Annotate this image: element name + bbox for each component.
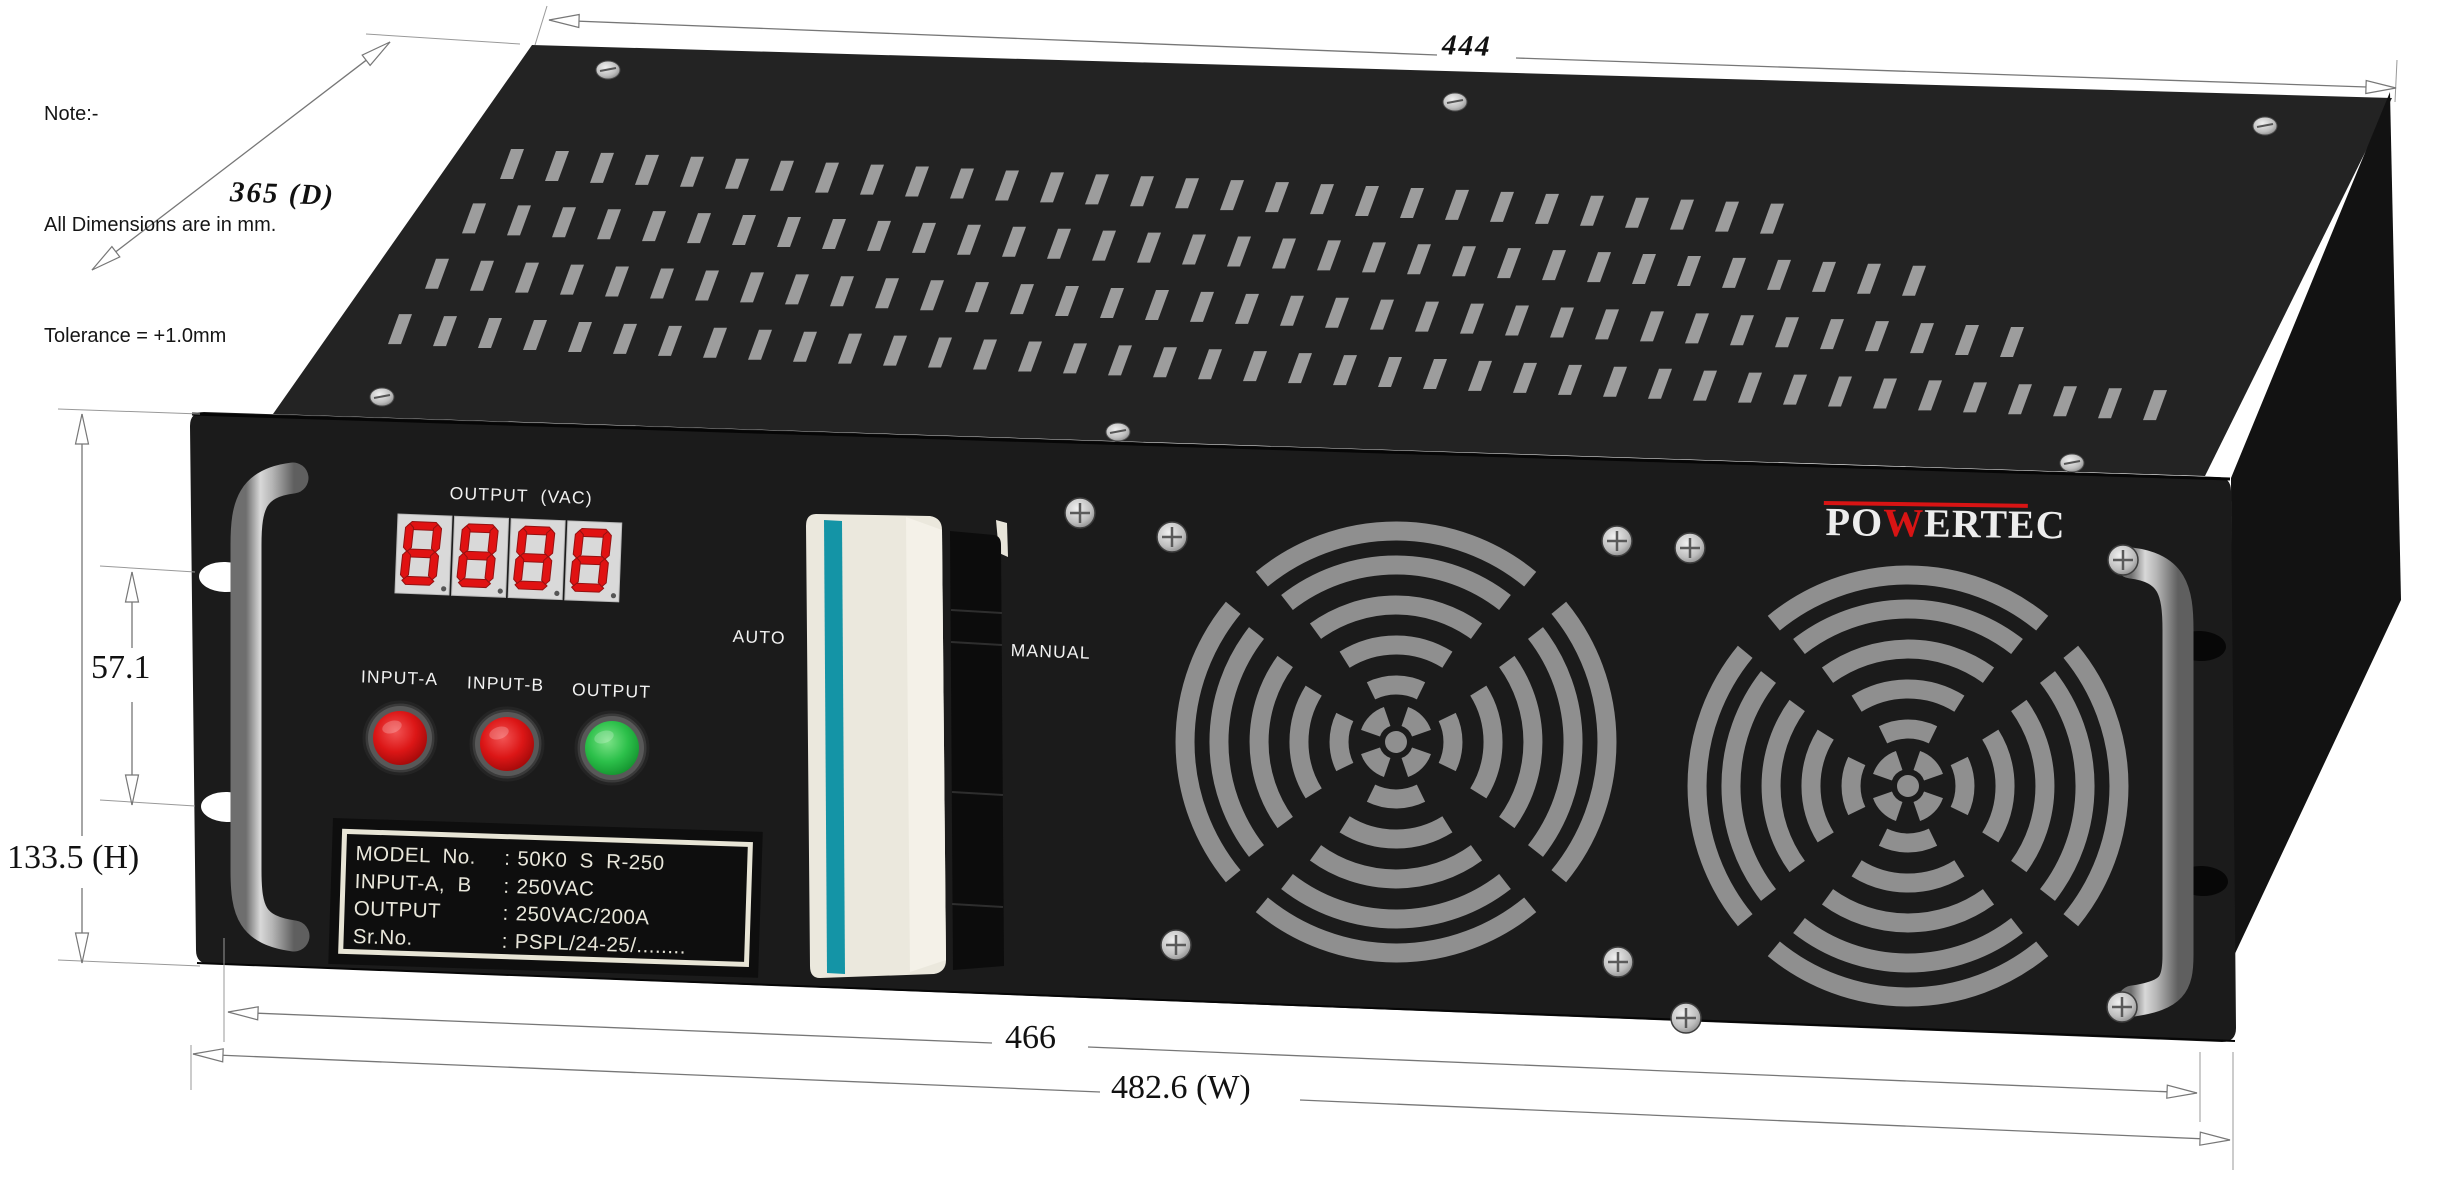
changeover-switch (806, 514, 1008, 978)
nameplate-sep: : (497, 845, 518, 873)
nameplate-value: 250VAC/200A (515, 900, 650, 932)
indicator-label-input-a: INPUT-A (351, 666, 448, 690)
brand-logo: POWERTEC (1821, 492, 2037, 551)
brand-logo-text: POWERTEC (1825, 498, 2066, 548)
note-title: Note:- (44, 96, 276, 133)
nameplate-value: 250VAC (516, 873, 595, 903)
note-line-1: All Dimensions are in mm. (44, 207, 276, 244)
dim-depth: 365 (D) (229, 176, 335, 213)
brand-mark-w: W (1883, 500, 1925, 546)
indicator-leds (364, 702, 648, 784)
brand-prefix: PO (1825, 499, 1883, 545)
technical-drawing: Note:- All Dimensions are in mm. Toleran… (0, 0, 2442, 1183)
nameplate-sep: : (494, 927, 515, 955)
indicator-label-input-b: INPUT-B (457, 672, 554, 696)
indicator-label-output: OUTPUT (565, 679, 658, 703)
nameplate-sep: : (495, 900, 516, 928)
nameplate-sep: : (496, 872, 517, 900)
dim-overall-width: 482.6 (W) (1106, 1069, 1256, 1107)
nameplate-value: PSPL/24-25/........ (514, 928, 686, 961)
brand-suffix: ERTEC (1924, 500, 2066, 547)
nameplate-text: MODEL No. : 50K0 S R-250 INPUT-A, B : 25… (352, 840, 755, 963)
switch-label-auto: AUTO (732, 626, 786, 649)
note-line-2: Tolerance = +1.0mm (44, 318, 276, 355)
switch-label-manual: MANUAL (1010, 640, 1091, 664)
dim-rack-spacing: 57.1 (86, 649, 156, 687)
nameplate-label: Sr.No. (352, 922, 495, 954)
dim-top-width: 444 (1437, 29, 1496, 64)
drawing-note: Note:- All Dimensions are in mm. Toleran… (44, 22, 276, 429)
dim-inner-width: 466 (1000, 1019, 1061, 1057)
unit-rendering (0, 0, 2442, 1183)
dim-height: 133.5 (H) (2, 839, 144, 877)
